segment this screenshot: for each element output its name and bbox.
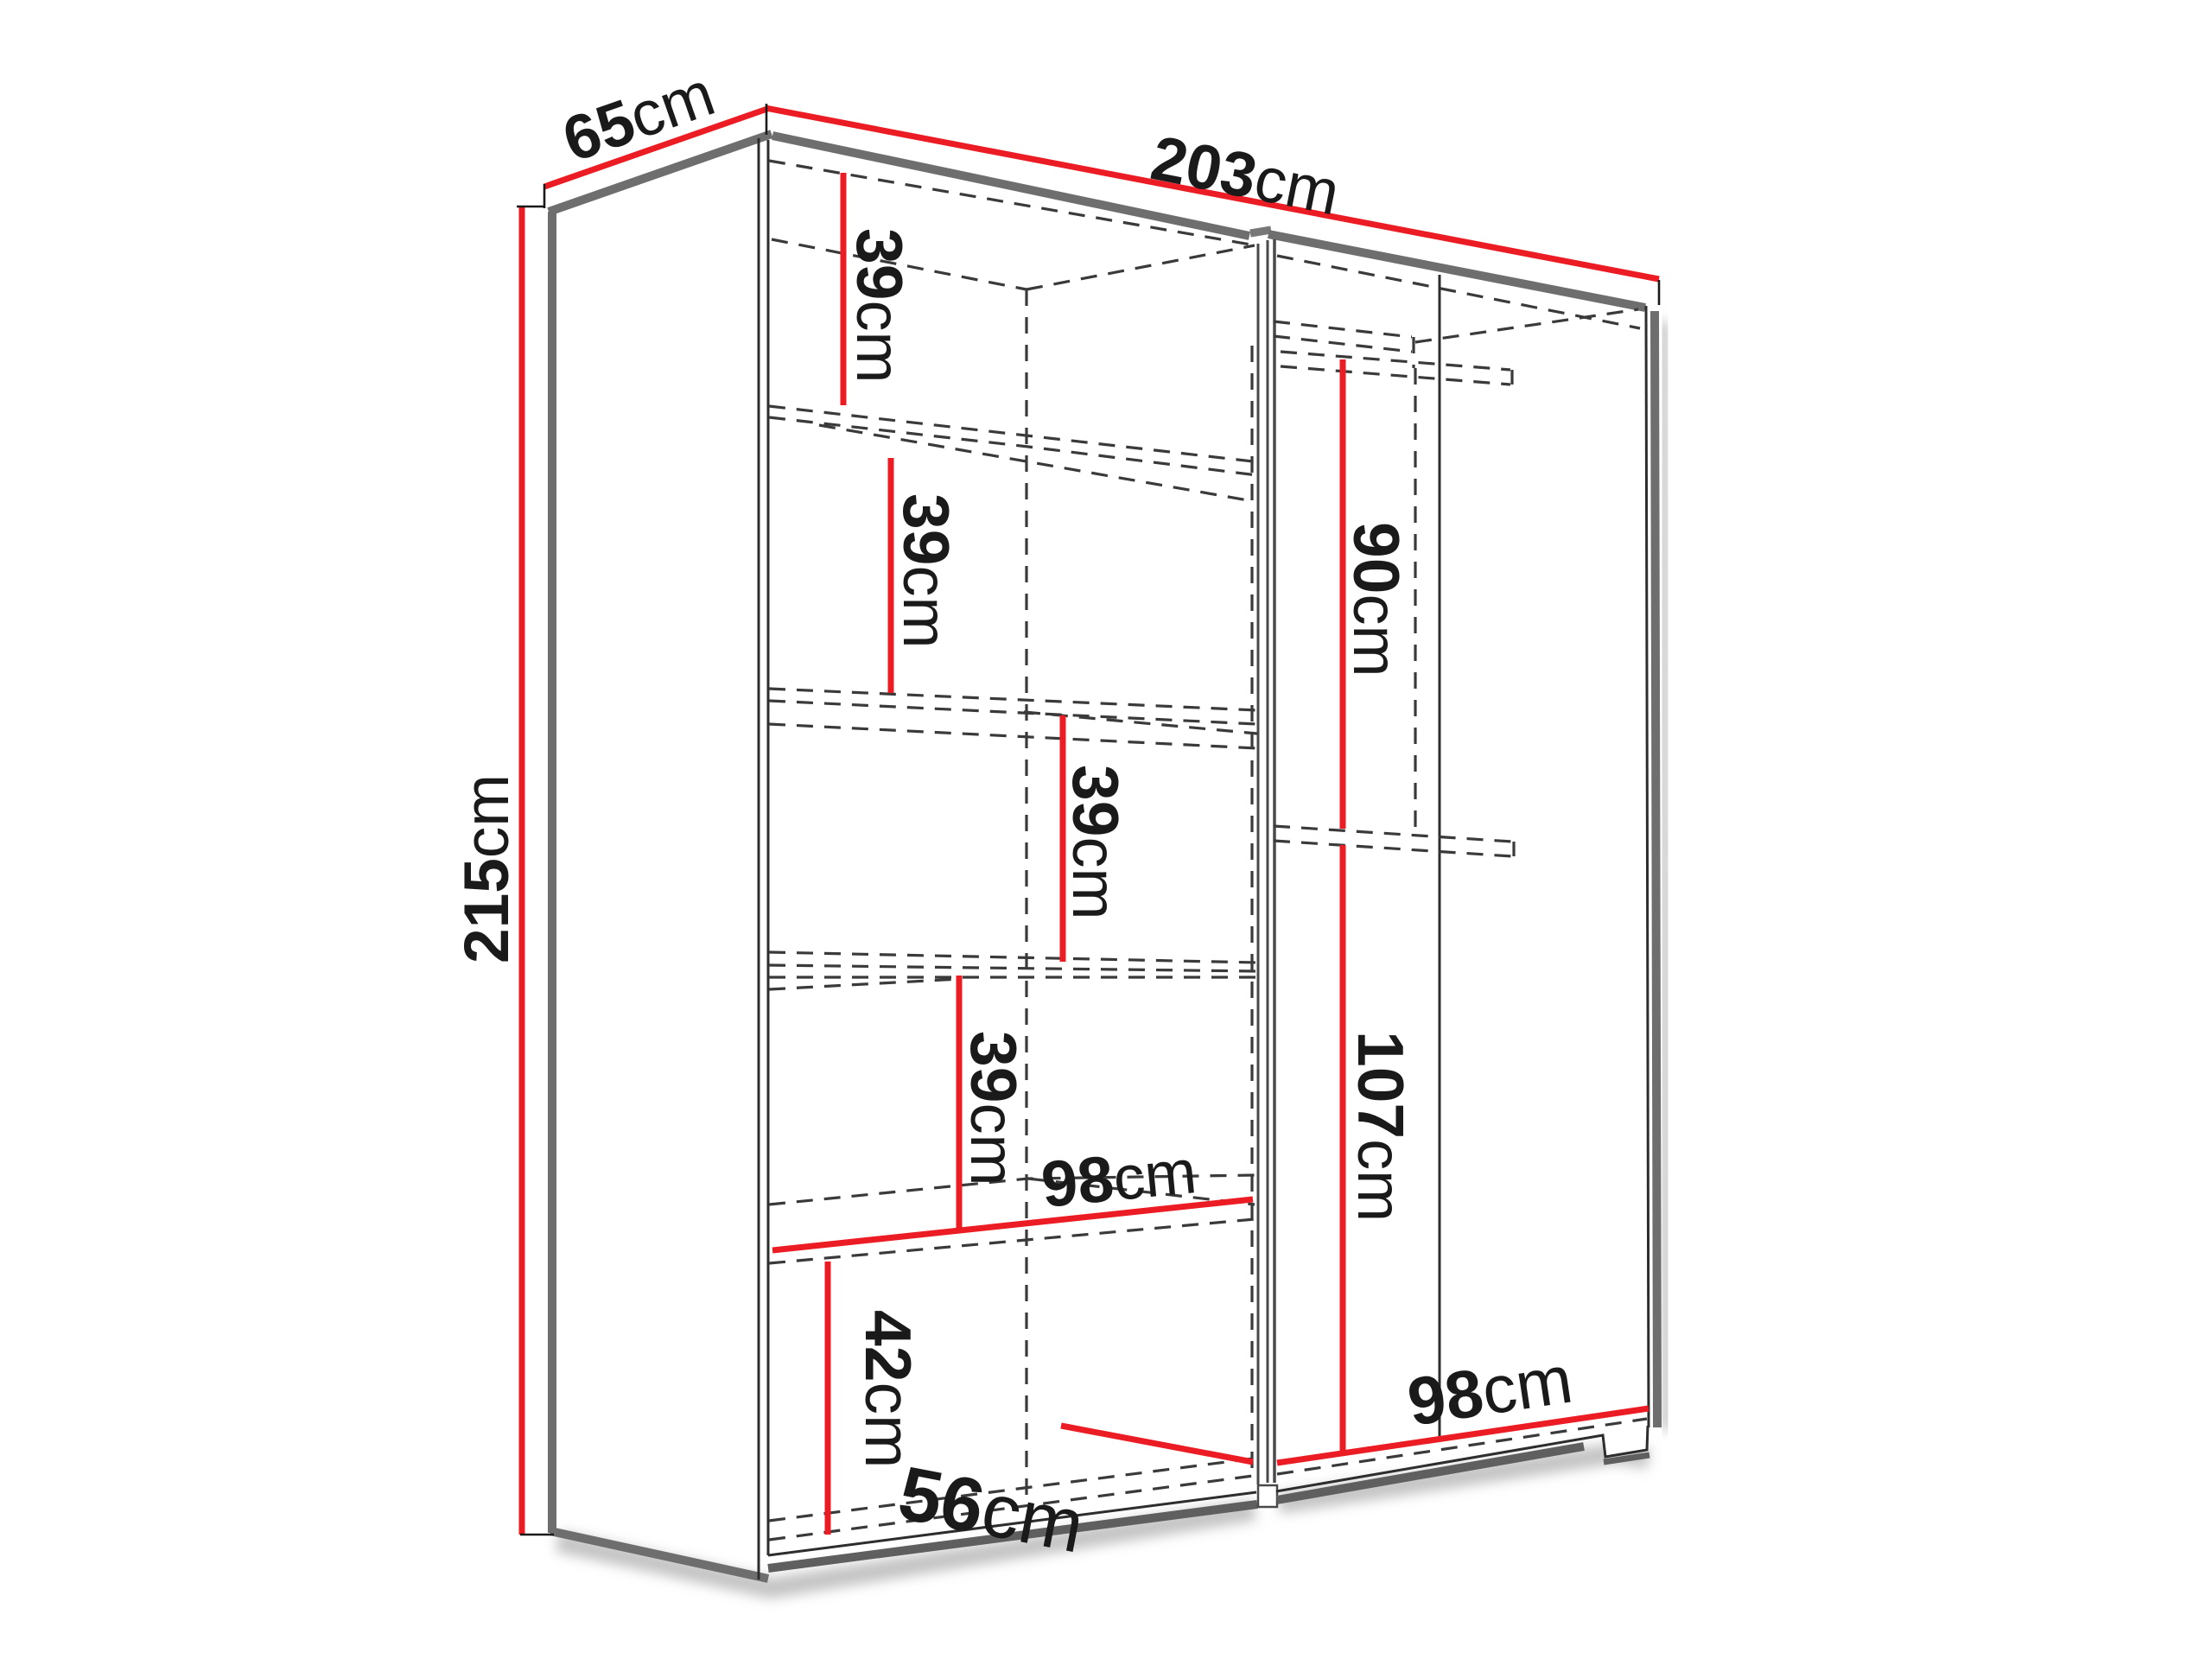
svg-text:215cm: 215cm bbox=[452, 774, 522, 963]
svg-text:90cm: 90cm bbox=[1340, 522, 1413, 677]
svg-text:42cm: 42cm bbox=[852, 1310, 925, 1468]
svg-text:39cm: 39cm bbox=[843, 228, 916, 383]
svg-text:39cm: 39cm bbox=[1059, 765, 1132, 919]
svg-text:39cm: 39cm bbox=[957, 1031, 1030, 1185]
svg-text:107cm: 107cm bbox=[1344, 1031, 1417, 1222]
svg-text:39cm: 39cm bbox=[890, 493, 963, 648]
svg-text:98cm: 98cm bbox=[1038, 1134, 1199, 1221]
